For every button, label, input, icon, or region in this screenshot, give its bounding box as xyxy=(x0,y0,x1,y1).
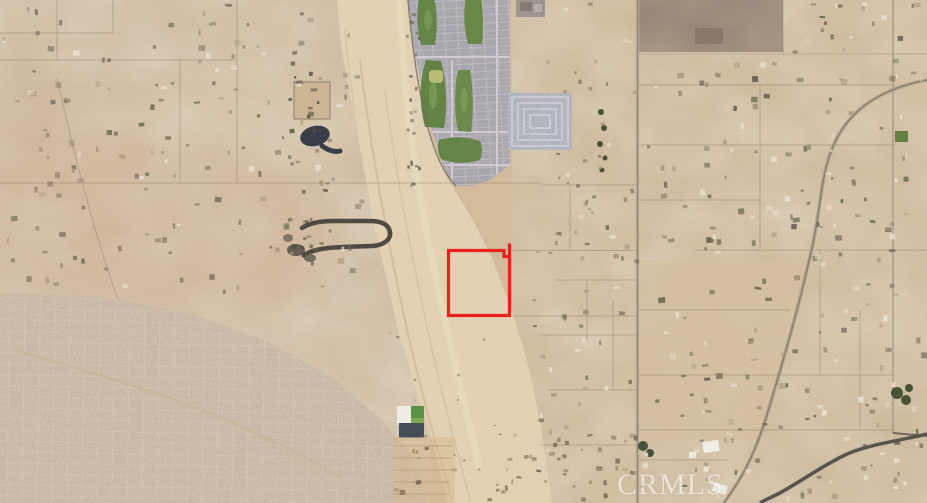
satellite-map xyxy=(0,0,927,503)
aerial-listing-photo: CRMLS xyxy=(0,0,927,503)
